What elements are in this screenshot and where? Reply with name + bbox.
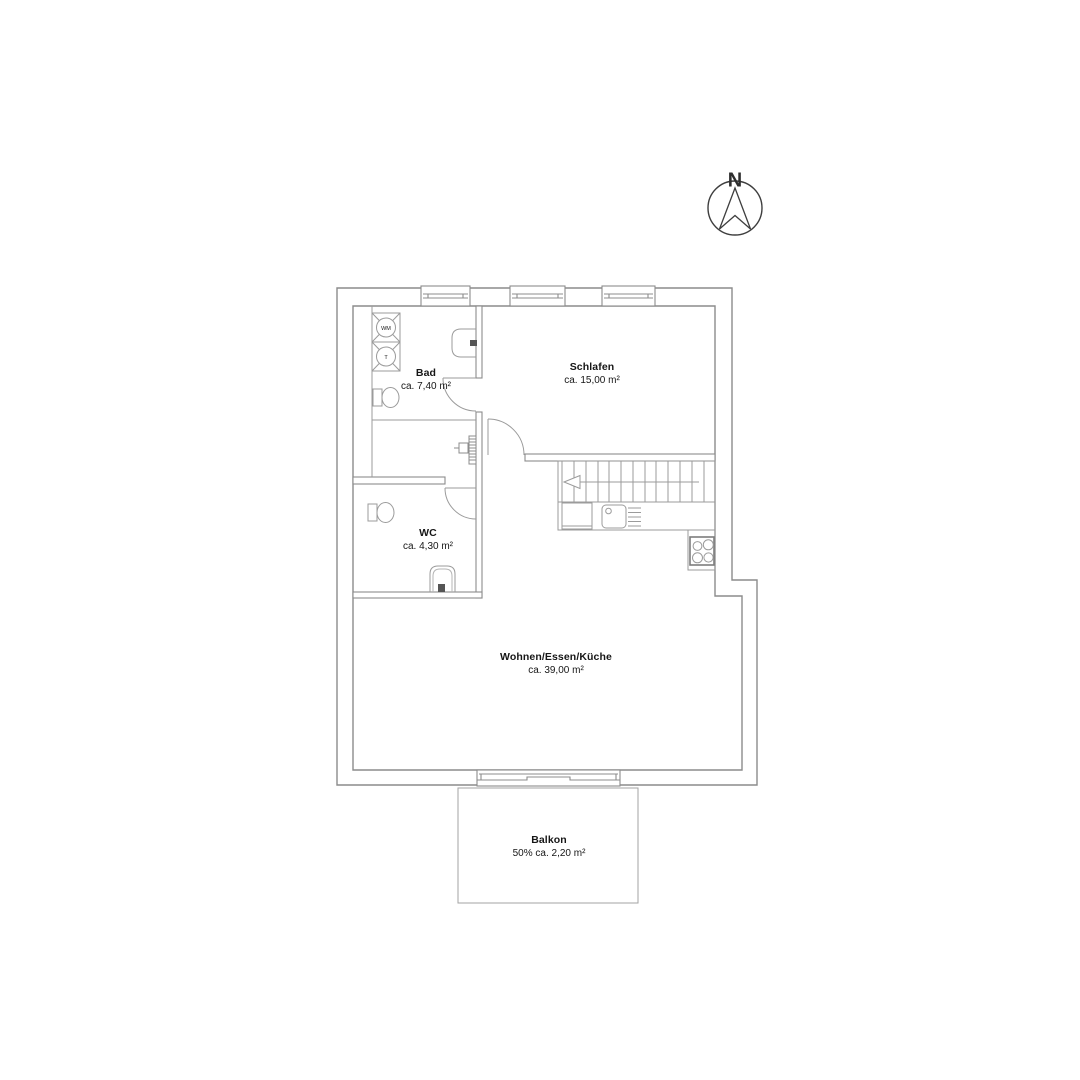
stairs-direction-arrow (564, 476, 699, 489)
wall-bad-wc-hall (476, 412, 482, 598)
schlafen-room-label: Schlafen ca. 15,00 m² (564, 361, 620, 387)
stove-icon (690, 537, 714, 565)
schlafen-room-area: ca. 15,00 m² (564, 374, 620, 387)
wc-room-label: WC ca. 4,30 m² (403, 527, 453, 553)
wc-sink-icon (430, 566, 455, 592)
window-schlafen-2-icon (602, 286, 655, 306)
wc-door-icon (445, 488, 476, 519)
schlafen-door-icon (488, 419, 524, 455)
balkon-room-name: Balkon (513, 834, 586, 847)
wall-bad-wc (353, 477, 445, 484)
washing-machine-label: WM (381, 326, 391, 332)
kitchen-cabinet-icon (562, 503, 592, 529)
bad-room-label: Bad ca. 7,40 m² (401, 367, 451, 393)
bad-room-name: Bad (401, 367, 451, 380)
washing-machine-icon: WM (372, 313, 400, 342)
floor-plan-drawing: WM T (0, 0, 1080, 1080)
schlafen-room-name: Schlafen (564, 361, 620, 374)
north-label: N (728, 170, 742, 193)
wall-schlafen-living (525, 454, 715, 461)
stairs-icon (558, 461, 715, 502)
wc-room-area: ca. 4,30 m² (403, 540, 453, 553)
window-bad-icon (421, 286, 470, 306)
wohnen-room-label: Wohnen/Essen/Küche ca. 39,00 m² (500, 651, 612, 677)
windows (421, 286, 655, 306)
window-schlafen-1-icon (510, 286, 565, 306)
wall-wc-living (353, 592, 482, 598)
wohnen-room-area: ca. 39,00 m² (500, 664, 612, 677)
interior-walls (353, 306, 715, 598)
bad-room-area: ca. 7,40 m² (401, 380, 451, 393)
dryer-icon: T (372, 342, 400, 371)
bad-toilet-icon (373, 388, 399, 408)
balkon-room-area: 50% ca. 2,20 m² (513, 847, 586, 860)
kitchen-counter (558, 502, 715, 570)
radiator-icon (454, 436, 476, 464)
balkon-room-label: Balkon 50% ca. 2,20 m² (513, 834, 586, 860)
bad-sink-icon (452, 329, 477, 357)
north-arrow-icon (720, 188, 751, 229)
wohnen-room-name: Wohnen/Essen/Küche (500, 651, 612, 664)
dish-drainer-icon (628, 508, 641, 526)
floor-plan-page: WM T (0, 0, 1080, 1080)
wc-toilet-icon (368, 503, 394, 523)
wc-room-name: WC (403, 527, 453, 540)
sliding-door-icon (477, 770, 620, 786)
kitchen-sink-icon (602, 505, 626, 528)
